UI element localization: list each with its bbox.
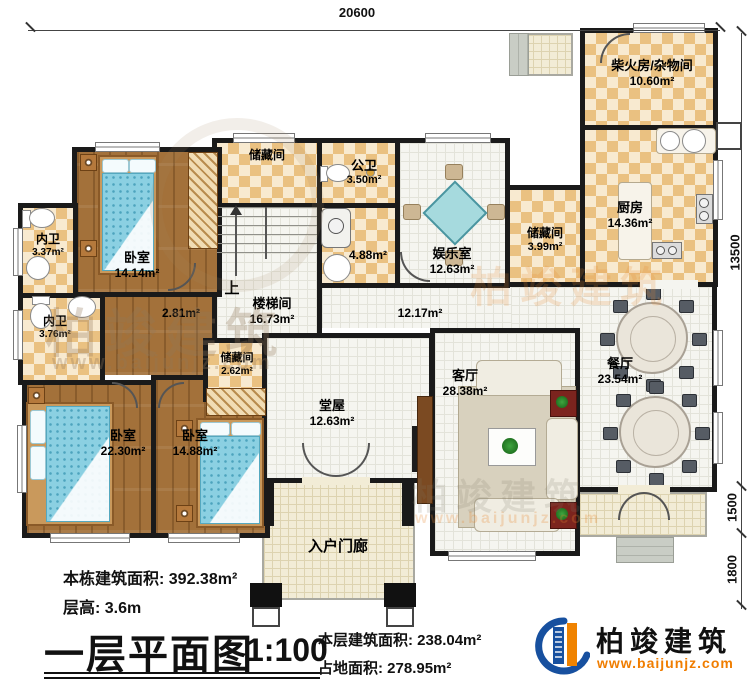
pillow — [231, 422, 261, 436]
label-bath1: 内卫 3.37m² — [24, 232, 72, 260]
label-chaihuo: 柴火房/杂物间 10.60m² — [592, 58, 712, 89]
label-storage-small: 储藏间 2.62m² — [206, 352, 268, 378]
label-bedroom2: 卧室 22.30m² — [88, 428, 158, 459]
chair — [403, 204, 421, 220]
nightstand — [80, 240, 97, 257]
footprint-area: 占地面积: 278.95m² — [318, 657, 451, 678]
porch-wall-stub — [402, 478, 414, 526]
dimension-right-low: 1800 — [725, 540, 740, 600]
brand-url: www.baijunjz.com — [597, 655, 734, 671]
floor-height: 层高: 3.6m — [63, 594, 141, 618]
nightstand — [28, 387, 45, 404]
plant — [556, 396, 568, 408]
stair-up-arrow — [230, 205, 242, 215]
label-kitchen: 厨房 14.36m² — [585, 200, 675, 231]
window — [233, 133, 295, 143]
window — [713, 412, 723, 464]
side-porch-floor — [523, 33, 573, 76]
label-corridor: 12.17m² — [388, 306, 452, 321]
floor-plan-page: 上 — [0, 0, 750, 691]
chair — [682, 394, 697, 407]
washing-machine-door — [328, 218, 344, 234]
dimension-line-right — [741, 33, 742, 609]
passage-gap — [640, 280, 698, 289]
sofa — [474, 498, 560, 532]
chair — [692, 333, 707, 346]
chair — [600, 333, 615, 346]
wardrobe — [188, 152, 218, 249]
label-bedroom1: 卧室 14.14m² — [102, 250, 172, 281]
window — [95, 142, 160, 152]
mattress — [46, 406, 110, 522]
floor-area: 本层建筑面积: 238.04m² — [318, 629, 481, 650]
tv — [412, 426, 417, 472]
sofa — [546, 418, 578, 500]
window — [13, 228, 23, 276]
label-storage-right: 储藏间 3.99m² — [508, 226, 582, 255]
window — [633, 23, 705, 33]
label-public-bath: 公卫 3.50m² — [334, 158, 394, 188]
side-porch-steps — [509, 33, 529, 76]
nightstand — [80, 154, 97, 171]
label-dining: 餐厅 23.54m² — [572, 356, 668, 387]
flue-niche — [716, 122, 742, 150]
cooktop-burner — [668, 246, 677, 255]
plant — [502, 438, 518, 454]
chair — [679, 300, 694, 313]
chair — [487, 204, 505, 220]
label-tangwu: 堂屋 12.63m² — [288, 398, 376, 429]
dining-table-center — [633, 410, 679, 456]
chair — [603, 427, 618, 440]
drawing-scale: 1:100 — [246, 632, 328, 669]
window — [50, 533, 130, 543]
label-porch: 入户门廊 — [288, 538, 388, 557]
dimension-top: 20600 — [322, 5, 392, 20]
window — [713, 330, 723, 386]
sink — [682, 129, 706, 153]
chair — [616, 460, 631, 473]
label-hall: 2.81m² — [152, 306, 210, 321]
brand-logo-icon — [530, 614, 590, 680]
brand-name: 柏竣建筑 — [596, 620, 732, 660]
plant — [556, 508, 568, 520]
wardrobe — [206, 388, 266, 416]
pillow — [102, 159, 129, 173]
toilet — [29, 208, 55, 228]
porch-column — [250, 583, 282, 607]
total-building-area: 本栋建筑面积: 392.38m² — [63, 565, 237, 589]
label-stairwell: 楼梯间 16.73m² — [228, 296, 316, 327]
window — [13, 310, 23, 360]
label-wash: 4.88m² — [340, 248, 396, 263]
chair — [616, 394, 631, 407]
tv-cabinet — [417, 396, 433, 504]
window — [448, 551, 536, 561]
stove-burner — [699, 211, 709, 221]
chair — [613, 300, 628, 313]
chair — [682, 460, 697, 473]
chair — [695, 427, 710, 440]
stair-direction-line — [235, 214, 237, 276]
title-underline — [44, 672, 320, 679]
window — [17, 425, 27, 493]
window — [713, 160, 723, 220]
label-bath2: 内卫 3.76m² — [30, 314, 80, 342]
dimension-line-top — [28, 30, 720, 31]
nightstand — [176, 505, 193, 522]
dimension-right-mid: 1500 — [725, 478, 740, 538]
pillow — [30, 410, 46, 444]
window — [425, 133, 491, 143]
terrace-steps — [616, 537, 674, 563]
brand-logo-svg — [530, 614, 590, 680]
pillow — [30, 446, 46, 480]
dimension-right-main: 13500 — [728, 218, 743, 288]
label-bedroom3: 卧室 14.88m² — [160, 428, 230, 459]
cooktop-burner — [656, 246, 665, 255]
chair — [679, 366, 694, 379]
porch-column-base — [386, 607, 414, 627]
window — [168, 533, 240, 543]
label-living: 客厅 28.38m² — [425, 368, 505, 399]
label-storage-top: 储藏间 — [222, 148, 312, 163]
porch-column-base — [252, 607, 280, 627]
door-gap — [302, 477, 370, 485]
label-entertainment: 娱乐室 12.63m² — [398, 246, 506, 277]
porch-column — [384, 583, 416, 607]
stove-burner — [699, 198, 709, 208]
stair-stringer — [265, 207, 267, 259]
chair — [445, 164, 463, 180]
washbasin — [26, 256, 50, 280]
pillow — [129, 159, 156, 173]
sink — [660, 131, 680, 151]
